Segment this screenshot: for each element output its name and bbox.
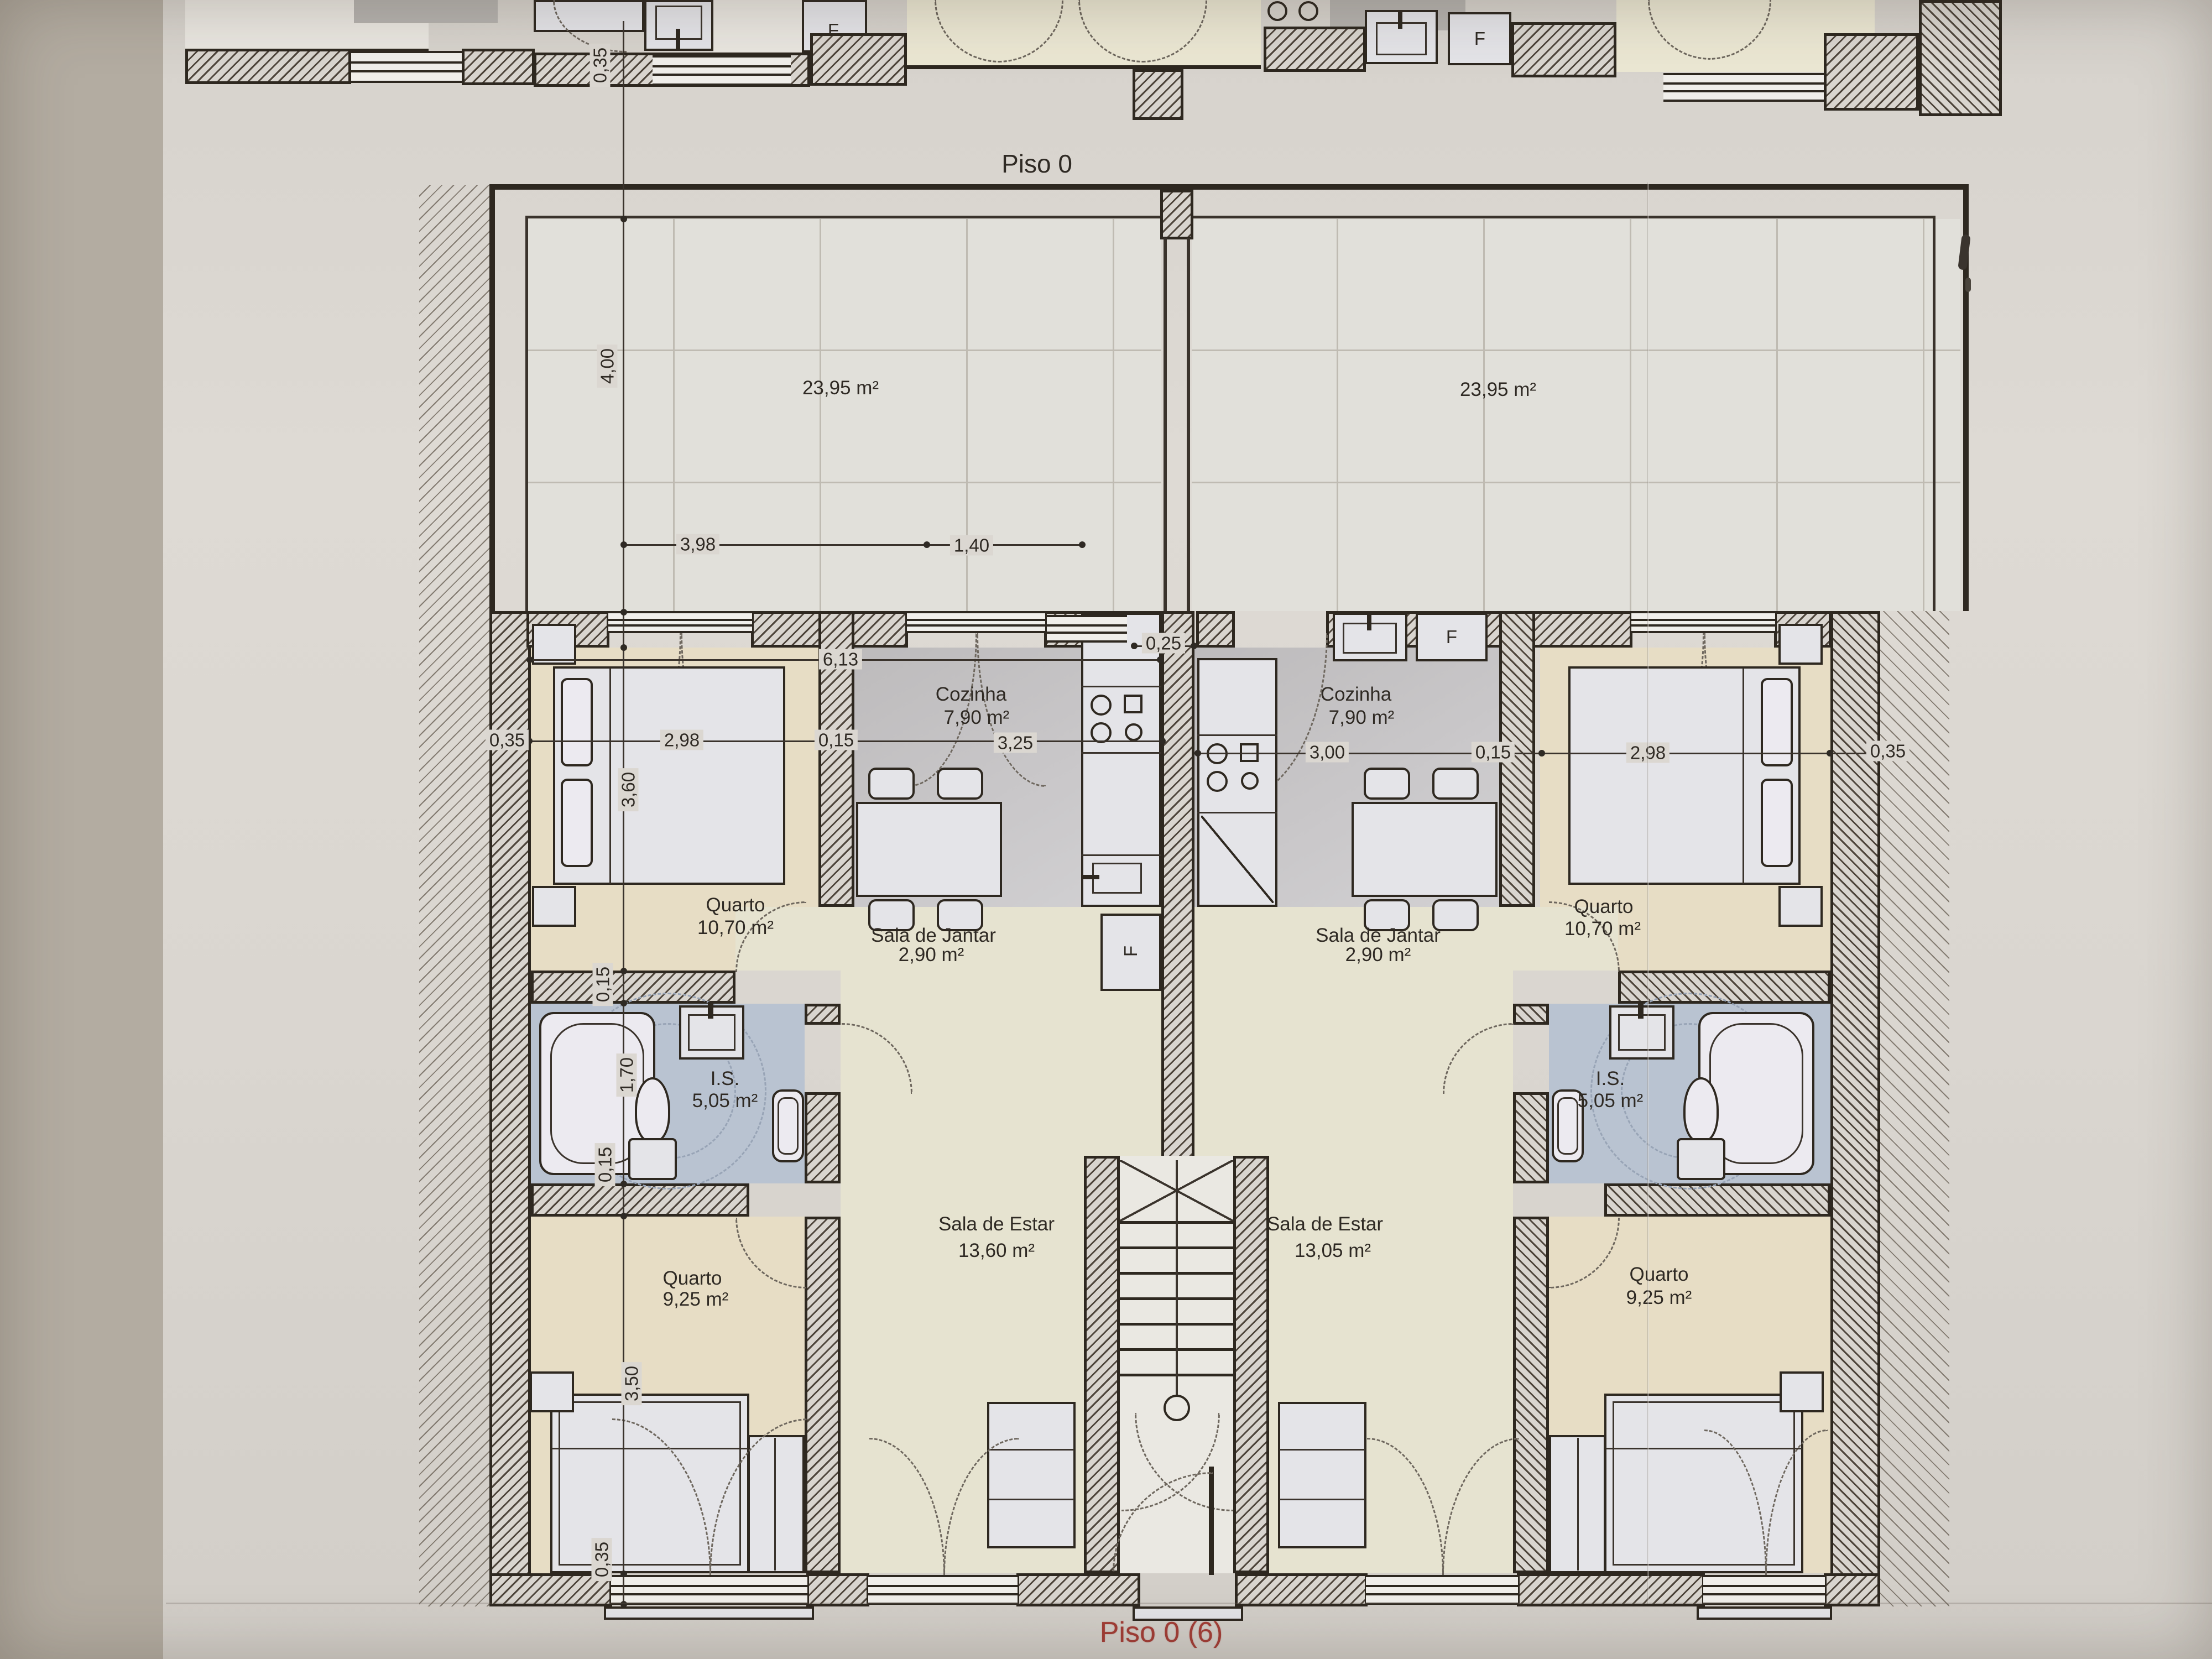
counter-divider	[1081, 752, 1161, 754]
dim-label: 0,35	[486, 730, 529, 750]
parapet-inner-line	[1189, 216, 1934, 218]
dim-label: 3,50	[622, 1362, 642, 1405]
stair-wall-right	[1233, 1156, 1269, 1573]
upper-wall	[1511, 22, 1616, 77]
room-area: 5,05 m²	[1578, 1091, 1644, 1112]
room-label: I.S.	[711, 1068, 740, 1089]
dim-tick	[620, 541, 627, 548]
chair	[937, 768, 983, 800]
dim-tick	[620, 968, 627, 974]
room-area: 2,90 m²	[1345, 945, 1411, 966]
terrace-divider-line	[1187, 238, 1190, 611]
chair	[1364, 768, 1410, 800]
terrace-parapet-top	[489, 184, 1969, 190]
facade-wall-bottom	[1235, 1573, 1368, 1606]
window	[1703, 1575, 1825, 1605]
dim-label: 1,40	[950, 535, 993, 556]
room-area: 13,05 m²	[1295, 1240, 1371, 1261]
upper-window	[1663, 73, 1824, 102]
sink-basin	[1092, 863, 1142, 894]
basin-tap	[708, 1002, 713, 1019]
upper-wall-edge	[907, 65, 1261, 69]
dim-line-h	[1196, 753, 1907, 754]
upper-wall	[1919, 0, 2002, 116]
chair	[868, 768, 915, 800]
upper-window	[351, 51, 462, 83]
room-area: 13,60 m²	[958, 1240, 1035, 1261]
dim-label: 6,13	[819, 649, 862, 670]
dining-table	[856, 802, 1002, 897]
dim-label: 3,25	[994, 733, 1037, 753]
window-sill	[604, 1606, 814, 1620]
wall-quarto2-sala	[805, 1217, 841, 1573]
room-area: 2,90 m²	[899, 945, 964, 966]
dim-tick	[620, 644, 627, 651]
room-area: 9,25 m²	[1626, 1287, 1692, 1308]
dim-label: 0,35	[1866, 741, 1910, 761]
dim-label: 2,98	[660, 730, 703, 750]
window	[868, 1575, 1018, 1605]
dim-tick	[1157, 656, 1164, 663]
terrace-right-floor	[1192, 219, 1960, 611]
fridge-label: F	[1474, 28, 1485, 49]
upper-slab	[354, 0, 498, 23]
outer-wall-left	[489, 611, 531, 1606]
dim-tick	[1131, 643, 1138, 649]
sink-tap	[676, 29, 680, 50]
facade-wall	[1196, 611, 1235, 648]
pillow	[1761, 779, 1793, 867]
photo-artifact	[1965, 278, 1971, 292]
room-area: 10,70 m²	[1564, 919, 1641, 940]
dim-tick	[1194, 750, 1201, 757]
parapet-inner-line	[1933, 216, 1936, 611]
dim-tick	[1079, 541, 1086, 548]
room-area: 7,90 m²	[1329, 707, 1395, 728]
window-sill	[1697, 1606, 1832, 1620]
room-label: Cozinha	[936, 684, 1006, 705]
paper-crease	[1647, 182, 1649, 1604]
dim-label: 4,00	[597, 345, 618, 388]
dim-label: 0,35	[592, 1538, 612, 1581]
terrace-door-window	[907, 611, 1045, 633]
room-area: 5,05 m²	[692, 1091, 758, 1112]
room-area: 9,25 m²	[663, 1289, 729, 1310]
dim-tick	[620, 1571, 627, 1577]
dim-label: 3,00	[1306, 742, 1349, 763]
bed-fold-line	[609, 668, 611, 884]
counter-divider	[1081, 686, 1161, 687]
counter-divider	[1197, 734, 1277, 736]
dim-tick	[526, 656, 533, 663]
nightstand	[532, 886, 576, 927]
wall-is-hall	[1513, 1092, 1549, 1183]
dim-tick	[620, 1213, 627, 1219]
room-label: Quarto	[706, 895, 765, 916]
stove-burner-icon	[1241, 772, 1259, 790]
sink-tap	[1367, 613, 1371, 630]
dim-label: 3,60	[618, 768, 639, 811]
room-label: I.S.	[1596, 1068, 1625, 1089]
stair-walk-line	[1176, 1160, 1178, 1398]
room-label: Quarto	[1574, 896, 1634, 917]
room-label: Sala de Estar	[1267, 1214, 1383, 1235]
window	[611, 1575, 807, 1605]
upper-wall	[462, 49, 535, 85]
stair-wall-left	[1084, 1156, 1120, 1573]
terrace-divider-line	[1164, 238, 1167, 611]
wall-is-hall	[805, 1004, 841, 1025]
terrace-parapet-left	[489, 184, 495, 611]
dim-label: 3,98	[676, 534, 719, 555]
bidet-inner	[778, 1097, 799, 1155]
counter-divider	[1197, 812, 1277, 813]
room-label: Sala de Jantar	[871, 925, 996, 946]
stove-burner-icon	[1124, 695, 1142, 713]
room-label: Sala de Jantar	[1316, 925, 1441, 946]
upper-wall	[1264, 27, 1366, 72]
bed-fold-line	[1606, 1448, 1802, 1449]
dim-tick	[620, 609, 627, 615]
dim-label: 0,15	[1472, 742, 1515, 763]
dim-label: 0,15	[593, 963, 613, 1006]
dim-label: 0,35	[590, 44, 611, 87]
pillow	[561, 678, 593, 766]
stove-burner-icon	[1125, 723, 1142, 741]
terrace-door-window	[1631, 611, 1775, 633]
sofa	[1278, 1402, 1366, 1548]
stove-burner-icon	[1207, 771, 1228, 792]
plan-title: Piso 0	[1001, 149, 1072, 179]
floor-plan-photo: F F Piso 0	[0, 0, 2212, 1659]
parapet-inner-line	[525, 216, 528, 611]
wall-is-hall	[1513, 1004, 1549, 1025]
dim-tick	[620, 1000, 627, 1006]
terrace-right-area-label: 23,95 m²	[1460, 379, 1536, 400]
neighbor-wall-left	[419, 185, 489, 1606]
wall-is-hall	[805, 1092, 841, 1183]
basin-tap	[1638, 1002, 1644, 1019]
sofa-cushion-line	[1280, 1449, 1365, 1451]
nightstand	[1778, 886, 1823, 927]
toilet-cistern	[1677, 1138, 1725, 1180]
upper-wall-pier	[1133, 69, 1183, 120]
stove-burner-icon	[1298, 1, 1318, 21]
dim-tick	[620, 1181, 627, 1187]
dim-tick	[1827, 750, 1833, 757]
washbasin-inner	[1618, 1014, 1666, 1051]
dim-tick	[1159, 738, 1166, 744]
dishwasher	[1201, 816, 1274, 903]
stove-burner-icon	[1091, 695, 1112, 716]
terrace-door-window	[608, 611, 752, 633]
nightstand	[532, 624, 576, 665]
room-label: Cozinha	[1321, 684, 1391, 705]
sink-tap	[1398, 10, 1402, 29]
facade-wall-bottom	[1824, 1573, 1880, 1606]
dim-label: 0,25	[1142, 633, 1185, 654]
party-wall	[1161, 611, 1194, 1159]
room-area: 7,90 m²	[944, 707, 1010, 728]
terrace-left-area-label: 23,95 m²	[802, 378, 879, 399]
nightstand	[1778, 624, 1823, 665]
dim-tick	[620, 216, 627, 222]
upper-wall-pier	[810, 33, 907, 86]
fridge-label: F	[1446, 627, 1457, 648]
counter-divider	[1081, 854, 1161, 856]
washbasin-inner	[688, 1014, 735, 1051]
facade-wall-bottom	[1517, 1573, 1705, 1606]
fridge-label: F	[1120, 946, 1141, 957]
room-label: Quarto	[1630, 1264, 1689, 1285]
dim-tick	[620, 1601, 627, 1608]
dim-tick	[924, 541, 930, 548]
sofa-cushion-line	[1280, 1499, 1365, 1500]
upper-wall	[1824, 33, 1919, 111]
toilet-cistern	[628, 1138, 677, 1180]
dim-tick	[1191, 643, 1197, 649]
stove-burner-icon	[1267, 1, 1287, 21]
upper-wall	[185, 49, 351, 84]
kitchen-window	[1047, 615, 1127, 643]
bed-fold-line	[1743, 668, 1744, 884]
upper-window	[653, 55, 791, 86]
wall-is-quarto2	[1604, 1183, 1830, 1217]
sink-tap	[1083, 875, 1099, 879]
facade-wall-bottom	[806, 1573, 869, 1606]
nightstand	[1780, 1371, 1824, 1412]
paper-crease	[166, 1603, 2212, 1604]
dim-tick	[1538, 750, 1545, 757]
bidet-inner	[1557, 1097, 1578, 1155]
toilet-bowl	[635, 1077, 670, 1142]
toilet-bowl	[1683, 1077, 1719, 1142]
window	[1366, 1575, 1518, 1605]
dim-label: 0,15	[595, 1143, 615, 1186]
facade-wall-bottom	[1016, 1573, 1140, 1606]
wall-is-quarto2	[531, 1183, 749, 1217]
upper-room	[713, 0, 802, 52]
chair	[1432, 768, 1479, 800]
room-area: 10,70 m²	[697, 917, 774, 938]
sheet-reference-label: Piso 0 (6)	[1100, 1616, 1223, 1649]
dim-label: 1,70	[617, 1053, 637, 1097]
nightstand	[530, 1371, 574, 1412]
terrace-divider-stub	[1160, 190, 1193, 239]
room-label: Sala de Estar	[938, 1214, 1055, 1235]
dining-table	[1352, 802, 1498, 897]
pillow	[561, 779, 593, 867]
room-label: Quarto	[663, 1268, 722, 1289]
wardrobe-rail	[1577, 1438, 1579, 1571]
dim-label: 0,15	[815, 730, 858, 750]
